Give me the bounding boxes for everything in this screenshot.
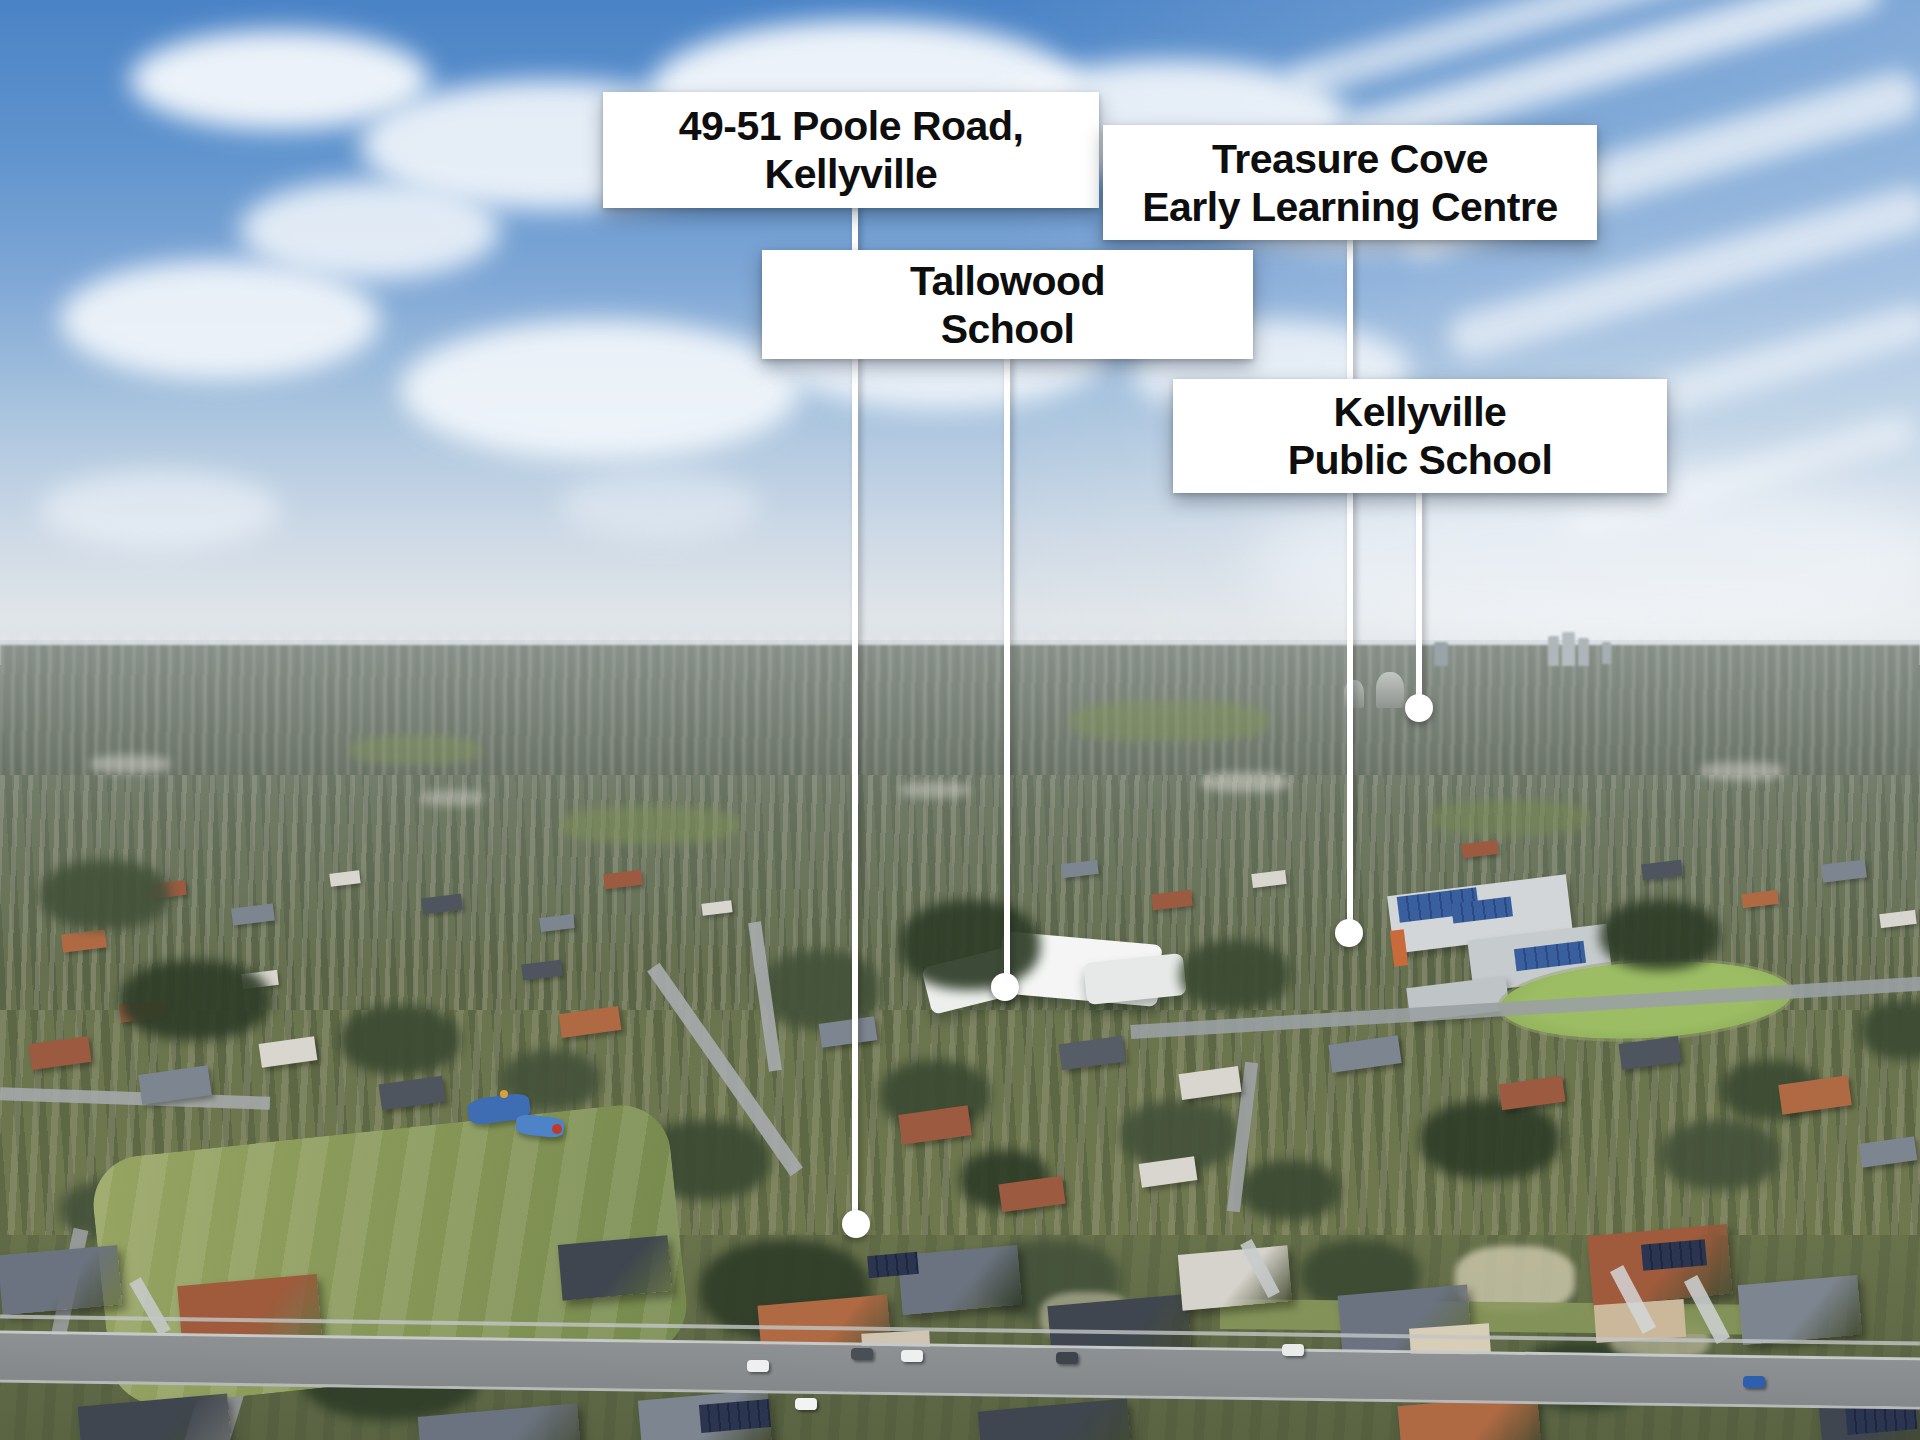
roof-shape [1461,840,1498,858]
car [1743,1376,1765,1388]
roof-shape [61,929,107,952]
roof-shape [1059,1036,1126,1071]
roof-shape [1821,859,1867,882]
field-patch [560,806,740,844]
car [1056,1352,1078,1364]
aerial-photo [0,0,1920,1440]
roof-shape [521,960,563,981]
skyline-tower [1602,642,1611,664]
roof-shape [603,870,643,890]
field-patch [1070,700,1270,742]
roof-shape [559,1006,622,1038]
leader-line-treasure-cove [1347,236,1353,933]
tree-blob [1180,940,1290,1010]
label-text-line: Tallowood [910,257,1105,305]
tree-blob [40,860,170,930]
leader-line-kellyville-public [1416,489,1422,708]
roof-shape [231,904,275,926]
field-patch [1430,800,1590,836]
tree-blob [1860,1000,1920,1060]
field-patch [1200,772,1290,792]
tallowood-white-roof [1083,953,1187,1005]
house-roof [1178,1245,1292,1310]
roof-shape [1251,870,1286,888]
tree-blob [1420,1100,1560,1180]
house-roof [78,1394,233,1440]
label-text-line: Kellyville [765,150,938,198]
label-text-line: Kellyville [1334,388,1507,436]
marker-dot-property [842,1210,870,1238]
car [795,1398,817,1410]
road-segment [0,1087,270,1109]
roof-shape [1741,890,1778,908]
roof-shape [28,1036,91,1070]
field-patch [90,755,170,773]
roof-shape [1859,1136,1918,1168]
play-equipment [500,1090,508,1098]
skyline-tower [1548,636,1559,666]
tree-blob [1600,900,1720,970]
label-kellyville-public-school: Kellyville Public School [1173,379,1667,493]
house-roof [978,1399,1133,1440]
skyline-tower [1578,638,1589,666]
roof-shape [379,1076,446,1111]
tree-blob [1660,1120,1780,1190]
field-patch [350,735,480,765]
water-tower [1376,672,1404,708]
car [901,1350,923,1362]
photo-features [0,0,1920,1440]
label-treasure-cove: Treasure Cove Early Learning Centre [1103,125,1597,240]
roof-shape [1151,890,1193,911]
label-text-line: Treasure Cove [1212,135,1488,183]
field-patch [900,782,970,798]
roof-shape [421,894,463,915]
solar-panel [867,1252,919,1278]
tree-blob [900,900,1040,990]
label-text-line: Public School [1288,436,1553,484]
car [747,1360,769,1372]
marker-dot-treasure-cove [1335,919,1363,947]
solar-panel [1641,1239,1707,1270]
house-roof [1738,1275,1863,1345]
leader-line-tallowood [1004,355,1010,987]
marker-dot-kellyville-public [1405,694,1433,722]
field-patch [420,790,484,806]
roof-shape [1499,1076,1566,1111]
marker-dot-tallowood [991,973,1019,1001]
roof-shape [329,870,360,887]
play-equipment [552,1124,562,1134]
skyline-tower [1434,642,1448,666]
roof-shape [1061,860,1098,878]
house-roof [558,1235,672,1300]
label-text-line: School [941,305,1075,353]
screenshot: 49-51 Poole Road, Kellyville Treasure Co… [0,0,1920,1440]
car [1282,1344,1304,1356]
roof-shape [1879,910,1916,928]
tree-blob [120,960,270,1040]
label-tallowood-school: Tallowood School [762,250,1253,359]
car [851,1348,873,1360]
label-property-address: 49-51 Poole Road, Kellyville [603,92,1099,208]
label-text-line: 49-51 Poole Road, [679,102,1024,150]
roof-shape [539,914,574,932]
tree-blob [340,1005,460,1075]
roof-shape [1178,1066,1241,1100]
field-patch [1700,762,1784,780]
house-roof [0,1245,122,1315]
roof-shape [1618,1036,1681,1070]
roof-shape [1641,860,1683,881]
roof-shape [259,1036,318,1068]
skyline-tower [1562,632,1575,666]
label-text-line: Early Learning Centre [1142,183,1558,231]
tree-blob [1240,1160,1340,1220]
roof-shape [1328,1035,1401,1072]
roof-shape [701,900,732,916]
